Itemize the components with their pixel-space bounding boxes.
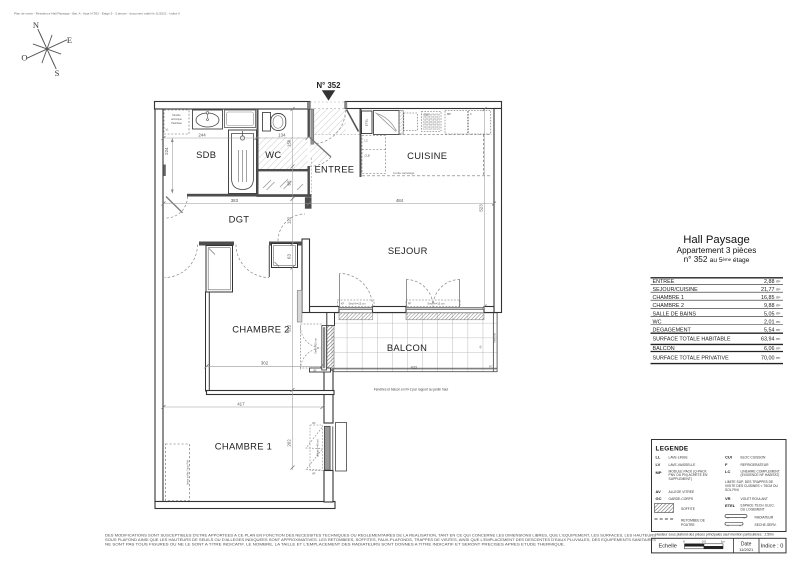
svg-text:CLB: CLB: [365, 154, 370, 158]
svg-text:AV: AV: [656, 489, 662, 494]
svg-text:Pack'Eau: Pack'Eau: [171, 122, 182, 125]
svg-text:CHAMBRE 2: CHAMBRE 2: [232, 323, 289, 334]
svg-text:N° 352: N° 352: [317, 81, 342, 90]
svg-text:n° 352 au 5ème étage: n° 352 au 5ème étage: [684, 255, 750, 264]
svg-text:224: 224: [164, 147, 169, 155]
svg-text:VR: VR: [725, 496, 731, 501]
svg-text:LL: LL: [656, 455, 661, 460]
svg-text:85: 85: [286, 180, 291, 185]
svg-text:WC: WC: [653, 319, 662, 325]
svg-text:ENTREE: ENTREE: [653, 279, 675, 285]
svg-text:244: 244: [198, 133, 206, 138]
svg-text:63,94: 63,94: [761, 337, 775, 343]
svg-text:Appartement 3 pièces: Appartement 3 pièces: [677, 246, 757, 255]
svg-text:E: E: [67, 35, 72, 45]
svg-text:DEGAGEMENT: DEGAGEMENT: [653, 328, 692, 334]
svg-text:383: 383: [231, 198, 239, 203]
svg-text:417: 417: [237, 401, 245, 406]
svg-text:302: 302: [261, 360, 269, 365]
svg-text:2,88: 2,88: [764, 279, 775, 285]
svg-text:Hall Paysage: Hall Paysage: [683, 234, 750, 246]
svg-text:RADIATEUR: RADIATEUR: [755, 515, 774, 519]
svg-text:CUI: CUI: [725, 455, 732, 460]
svg-text:122: 122: [286, 216, 291, 224]
svg-text:SEJOUR/CUISINE: SEJOUR/CUISINE: [653, 287, 699, 293]
svg-text:Limite carrelage: Limite carrelage: [393, 171, 415, 175]
svg-text:LV: LV: [656, 462, 661, 467]
svg-text:SEJOUR: SEJOUR: [388, 245, 428, 256]
svg-text:limite soffite Faux-Plaf.: limite soffite Faux-Plaf.: [186, 459, 189, 485]
svg-text:Fenêtres et balcon en R+2 par: Fenêtres et balcon en R+2 par rapport au…: [374, 388, 448, 392]
svg-text:(EXIGENCE NF HABITAT): (EXIGENCE NF HABITAT): [741, 473, 780, 477]
svg-text:LAVE-VAISSELLE: LAVE-VAISSELLE: [669, 463, 697, 467]
svg-text:202: 202: [286, 439, 291, 447]
svg-text:SALLE DE BAINS: SALLE DE BAINS: [653, 311, 697, 317]
svg-text:MP: MP: [656, 470, 662, 475]
svg-text:Echelle: Echelle: [659, 544, 677, 550]
svg-text:LC: LC: [725, 469, 730, 474]
svg-text:DES MODIFICATIONS SONT SUSCEPT: DES MODIFICATIONS SONT SUSCEPTIBLES D'ET…: [105, 534, 657, 538]
svg-text:CUI: CUI: [424, 112, 429, 116]
svg-text:11/2021: 11/2021: [739, 547, 754, 552]
svg-text:VR: VR: [313, 369, 317, 372]
svg-text:N: N: [33, 20, 39, 30]
svg-text:433: 433: [411, 365, 417, 369]
svg-text:POUTRE: POUTRE: [681, 523, 696, 527]
svg-text:SECHE-SERV.: SECHE-SERV.: [755, 523, 777, 527]
svg-text:technique: technique: [171, 118, 182, 121]
svg-text:150: 150: [286, 139, 291, 147]
svg-text:2,01: 2,01: [764, 319, 775, 325]
svg-text:LEGENDE: LEGENDE: [656, 446, 689, 453]
svg-text:VR: VR: [312, 422, 316, 425]
svg-text:VOLET ROULANT: VOLET ROULANT: [741, 497, 768, 501]
svg-text:SOUS PLAFOND AINSI QUE LES HAU: SOUS PLAFOND AINSI QUE LES HAUTEURS DE S…: [105, 538, 657, 542]
svg-text:DGT: DGT: [229, 213, 250, 224]
svg-text:SURFACE TOTALE HABITABLE: SURFACE TOTALE HABITABLE: [653, 337, 731, 343]
svg-text:BALCON: BALCON: [387, 342, 427, 353]
svg-text:CHAMBRE 1: CHAMBRE 1: [215, 441, 272, 452]
svg-text:523: 523: [478, 204, 483, 212]
svg-text:BALCON: BALCON: [653, 346, 675, 352]
svg-text:Pare-vue: Pare-vue: [493, 332, 496, 343]
svg-text:5,54: 5,54: [764, 328, 775, 334]
svg-text:KF: KF: [341, 303, 345, 306]
svg-text:WC: WC: [265, 149, 281, 160]
svg-text:6,06: 6,06: [764, 346, 775, 352]
svg-text:Hauteur sous plafond des pièce: Hauteur sous plafond des pièces principa…: [656, 533, 775, 537]
svg-text:REFRIGERATEUR: REFRIGERATEUR: [741, 463, 770, 467]
svg-text:Seuil M15 cm: Seuil M15 cm: [314, 338, 318, 354]
svg-text:ETEL: ETEL: [365, 118, 369, 126]
svg-text:CHAMBRE 2: CHAMBRE 2: [653, 303, 684, 309]
svg-text:ETEL: ETEL: [725, 503, 736, 508]
svg-text:allège h=45 cm: allège h=45 cm: [316, 439, 320, 457]
svg-text:MP: MP: [447, 112, 451, 116]
svg-text:Seuil h=15 cm: Seuil h=15 cm: [427, 302, 445, 306]
svg-text:VR: VR: [312, 473, 316, 476]
svg-text:Seuil h=15 cm: Seuil h=15 cm: [348, 302, 366, 306]
svg-text:63: 63: [286, 254, 291, 259]
svg-text:SDB: SDB: [196, 149, 216, 160]
svg-text:484: 484: [396, 198, 404, 203]
svg-text:1m: 1m: [721, 540, 726, 544]
svg-text:5,05: 5,05: [764, 311, 775, 317]
svg-text:GC: GC: [656, 496, 662, 501]
svg-text:SUPPLEMENT): SUPPLEMENT): [669, 477, 692, 481]
svg-text:DU LOGEMENT: DU LOGEMENT: [741, 507, 765, 511]
svg-text:21,77: 21,77: [761, 287, 775, 293]
svg-text:LC: LC: [365, 139, 368, 143]
svg-text:S: S: [55, 68, 60, 78]
svg-text:SOL FINI: SOL FINI: [725, 488, 739, 492]
svg-text:SOFFITE: SOFFITE: [681, 507, 696, 511]
svg-text:GARDE-CORPS: GARDE-CORPS: [669, 497, 694, 501]
svg-text:16,85: 16,85: [761, 295, 775, 301]
svg-text:BLOC CUISSON: BLOC CUISSON: [741, 456, 767, 460]
svg-text:ALLEGE VITREE: ALLEGE VITREE: [669, 490, 695, 494]
svg-text:O: O: [21, 53, 27, 63]
svg-text:CHAMBRE 1: CHAMBRE 1: [653, 295, 684, 301]
svg-text:LAVE-LINGE: LAVE-LINGE: [669, 456, 689, 460]
svg-text:ENTREE: ENTREE: [314, 164, 354, 175]
svg-text:BC: BC: [489, 365, 493, 369]
svg-text:Plan de vente - Residence Hall: Plan de vente - Residence Hall Paysage -…: [14, 12, 180, 16]
svg-text:134: 134: [278, 133, 286, 138]
svg-text:Indice : 0: Indice : 0: [761, 544, 784, 550]
svg-text:Meuble: Meuble: [172, 114, 181, 117]
svg-text:CUISINE: CUISINE: [407, 150, 447, 161]
svg-text:NE SONT PAS TOUS FIGURES OU NE: NE SONT PAS TOUS FIGURES OU NE LE SONT A…: [105, 542, 565, 546]
svg-text:9,88: 9,88: [764, 303, 775, 309]
svg-text:PF: PF: [408, 303, 412, 306]
svg-text:0.5: 0.5: [702, 540, 707, 544]
svg-text:SURFACE TOTALE PRIVATIVE: SURFACE TOTALE PRIVATIVE: [653, 356, 730, 362]
svg-text:70,00: 70,00: [761, 356, 775, 362]
